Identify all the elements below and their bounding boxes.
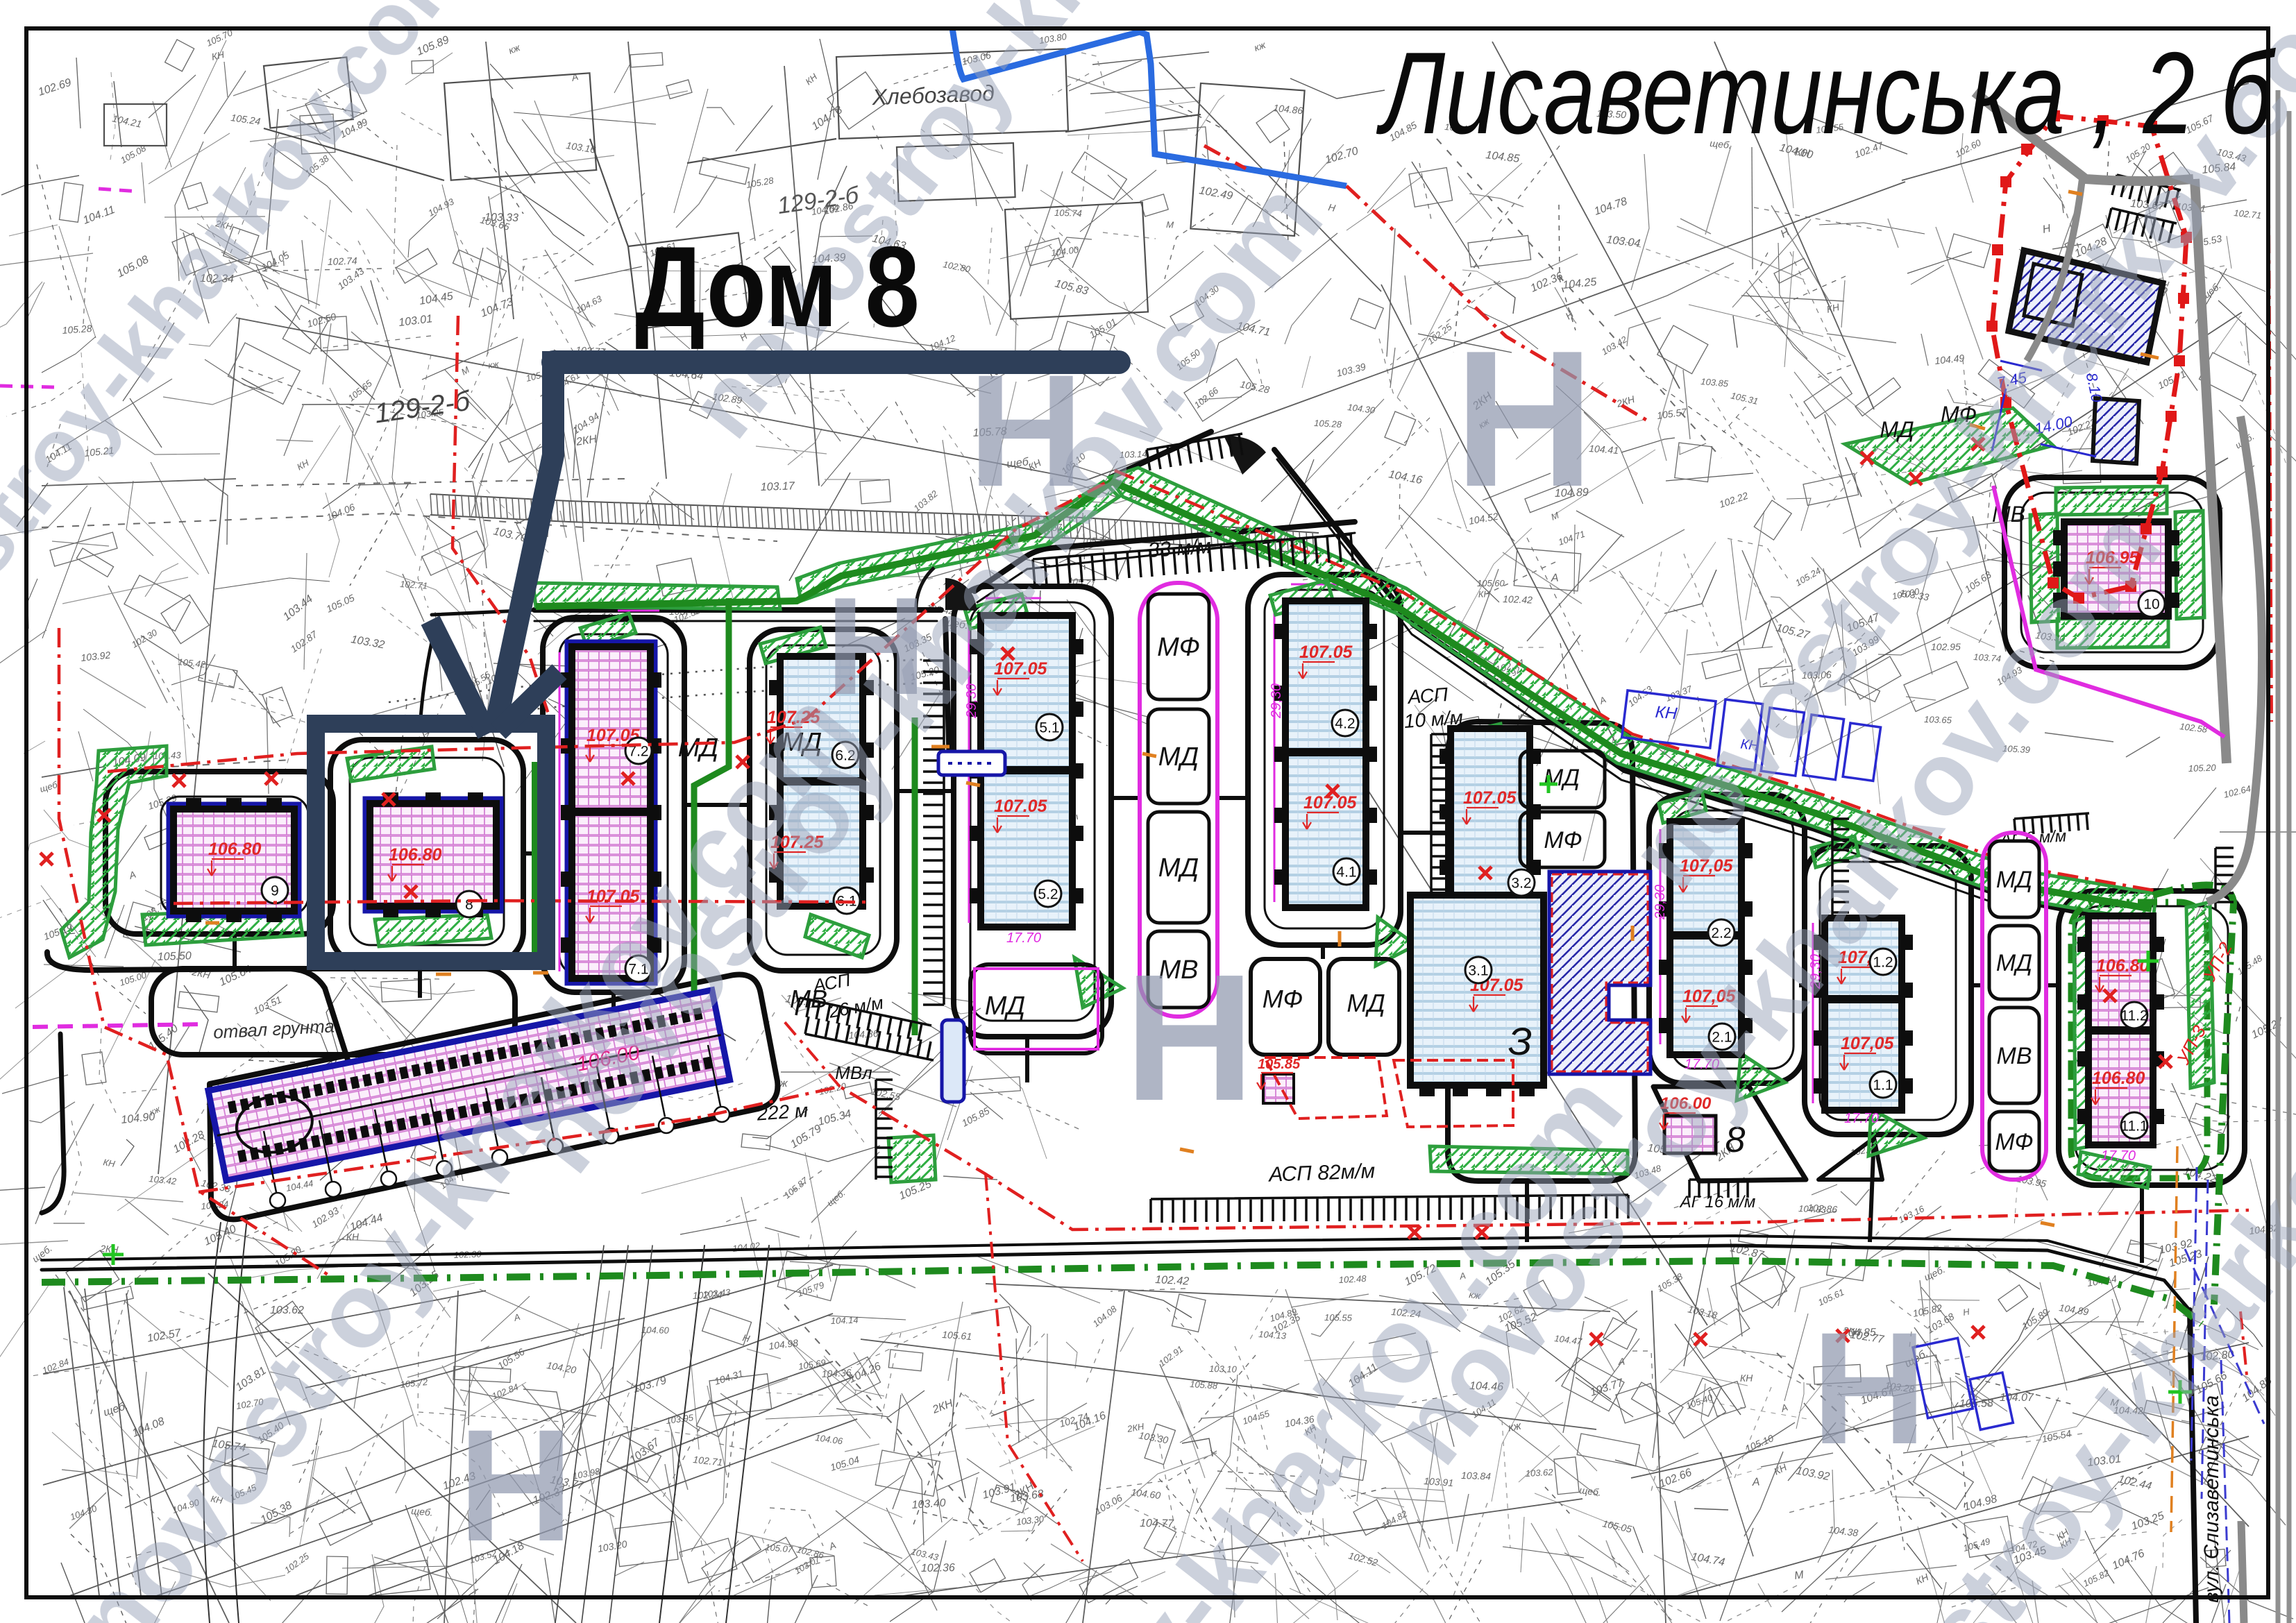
- svg-text:103.17: 103.17: [761, 480, 796, 493]
- svg-text:104.86: 104.86: [848, 1028, 879, 1041]
- svg-text:МД: МД: [1347, 989, 1385, 1017]
- svg-text:Н: Н: [458, 1396, 573, 1574]
- svg-text:106.80: 106.80: [2092, 1069, 2145, 1088]
- svg-text:МВ: МВ: [1997, 1043, 2032, 1069]
- svg-text:104.83: 104.83: [1798, 1203, 1827, 1215]
- svg-text:107.05: 107.05: [1463, 788, 1517, 808]
- svg-text:вул. Єлизаветинська: вул. Єлизаветинська: [2200, 1395, 2223, 1603]
- svg-text:104.14: 104.14: [831, 1315, 859, 1326]
- svg-text:103.40: 103.40: [911, 1497, 946, 1511]
- svg-text:29,30: 29,30: [1653, 885, 1668, 920]
- svg-text:КН: КН: [1740, 1373, 1754, 1384]
- svg-text:АСП 82м/м: АСП 82м/м: [1267, 1159, 1376, 1186]
- svg-text:105.74: 105.74: [1054, 207, 1082, 219]
- svg-text:107.05: 107.05: [994, 797, 1048, 816]
- svg-text:104.77: 104.77: [1140, 1518, 1174, 1530]
- svg-text:АГ 16 м/м: АГ 16 м/м: [1679, 1193, 1756, 1212]
- svg-text:КН: КН: [1478, 588, 1490, 600]
- svg-text:4.2: 4.2: [1335, 716, 1355, 732]
- svg-text:11.2: 11.2: [2120, 1008, 2147, 1024]
- svg-text:106.80: 106.80: [2096, 956, 2150, 976]
- svg-text:З: З: [1508, 1019, 1532, 1063]
- svg-text:М: М: [1166, 219, 1174, 230]
- svg-text:11.1: 11.1: [2120, 1119, 2147, 1135]
- svg-text:102.74: 102.74: [328, 255, 358, 267]
- svg-text:105.60: 105.60: [1477, 578, 1505, 588]
- svg-text:5.1: 5.1: [1039, 720, 1059, 736]
- svg-text:106.80: 106.80: [208, 840, 262, 859]
- svg-text:Н: Н: [1812, 1299, 1927, 1477]
- svg-text:КН: КН: [1655, 703, 1678, 724]
- svg-text:9: 9: [271, 883, 279, 899]
- svg-text:МД: МД: [985, 992, 1025, 1021]
- svg-text:105.50: 105.50: [158, 950, 192, 963]
- svg-text:АСП: АСП: [1406, 683, 1449, 708]
- svg-text:102.95: 102.95: [1931, 641, 1961, 652]
- svg-text:105.61: 105.61: [942, 1329, 972, 1342]
- svg-text:1.1: 1.1: [1873, 1078, 1893, 1094]
- svg-text:4.1: 4.1: [1336, 865, 1356, 881]
- svg-text:КН: КН: [102, 1157, 116, 1169]
- svg-text:103.62: 103.62: [1525, 1467, 1553, 1479]
- svg-text:222 м: 222 м: [755, 1099, 809, 1124]
- svg-text:А: А: [1751, 1476, 1760, 1488]
- svg-text:МФ: МФ: [1263, 985, 1303, 1013]
- svg-text:104.60: 104.60: [641, 1325, 670, 1336]
- svg-text:МВ: МВ: [790, 985, 827, 1013]
- svg-text:МФ: МФ: [1544, 827, 1582, 853]
- svg-text:3.2: 3.2: [1511, 876, 1531, 892]
- svg-text:102.42: 102.42: [1155, 1274, 1190, 1288]
- svg-text:А: А: [1551, 572, 1559, 584]
- svg-text:1.2: 1.2: [1873, 955, 1893, 971]
- svg-text:107,05: 107,05: [1841, 1034, 1895, 1053]
- svg-text:103.33: 103.33: [484, 212, 518, 224]
- svg-text:107.05: 107.05: [1303, 793, 1358, 813]
- svg-text:17.70: 17.70: [2101, 1148, 2136, 1164]
- svg-text:33 м/м: 33 м/м: [1147, 535, 1212, 562]
- svg-text:Н: Н: [1124, 937, 1255, 1139]
- svg-text:А: А: [1618, 1356, 1626, 1367]
- svg-text:106.80: 106.80: [389, 845, 442, 865]
- svg-text:105.85: 105.85: [1258, 1057, 1301, 1072]
- svg-text:105.20: 105.20: [2188, 763, 2217, 774]
- svg-text:МВл: МВл: [835, 1062, 872, 1083]
- svg-text:МД: МД: [1996, 867, 2032, 893]
- svg-text:3.1: 3.1: [1468, 963, 1488, 979]
- svg-text:105.28: 105.28: [1314, 418, 1342, 430]
- svg-text:107.05: 107.05: [1299, 643, 1353, 662]
- svg-text:МД: МД: [1158, 742, 1199, 772]
- svg-text:Лисаветинська , 2 б: Лисаветинська , 2 б: [1376, 28, 2277, 158]
- svg-text:17.70: 17.70: [1844, 1111, 1879, 1126]
- svg-text:МФ: МФ: [1157, 633, 1200, 662]
- svg-text:103.91: 103.91: [1424, 1475, 1454, 1488]
- svg-text:МФ: МФ: [1995, 1129, 2033, 1155]
- svg-text:МД: МД: [1158, 853, 1199, 883]
- svg-text:МД: МД: [1996, 950, 2032, 976]
- svg-text:102.42: 102.42: [1503, 593, 1533, 605]
- svg-text:17.70: 17.70: [1006, 931, 1041, 946]
- svg-text:МД: МД: [1880, 417, 1914, 442]
- svg-text:29,30: 29,30: [1269, 683, 1284, 719]
- svg-text:102.36: 102.36: [921, 1562, 955, 1574]
- svg-text:Дом 8: Дом 8: [635, 223, 920, 350]
- svg-text:102.48: 102.48: [1338, 1273, 1367, 1285]
- svg-text:5.2: 5.2: [1038, 887, 1058, 903]
- svg-text:2.2: 2.2: [1711, 926, 1731, 942]
- svg-text:102.71: 102.71: [400, 579, 428, 591]
- svg-text:Н: Н: [826, 569, 926, 724]
- svg-text:103.10: 103.10: [1209, 1363, 1238, 1375]
- svg-text:Н: Н: [1454, 311, 1594, 527]
